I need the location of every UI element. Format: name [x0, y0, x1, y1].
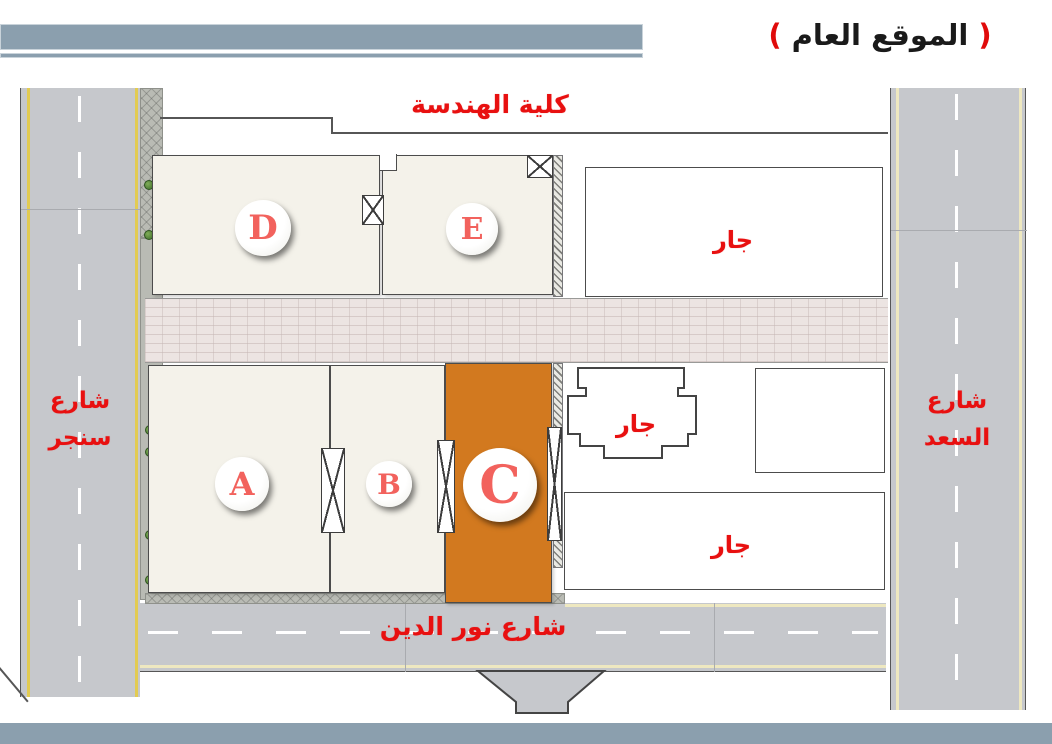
- right-road-edge-line: [896, 88, 899, 710]
- label-engineering-college: كلية الهندسة: [390, 90, 590, 119]
- core-xbox-c-right: [547, 427, 562, 541]
- label-neighbor-middle: جار: [596, 410, 676, 438]
- building-a-letter: A: [230, 465, 255, 503]
- driveway-ramp: [474, 669, 608, 715]
- building-b-letter: B: [377, 468, 401, 501]
- label-neighbor-bottom: جار: [691, 531, 771, 559]
- label-street-right: شارع السعد: [922, 383, 992, 457]
- central-walkway: [145, 298, 888, 363]
- building-e-badge: E: [446, 203, 498, 255]
- building-c-letter: C: [479, 455, 520, 516]
- building-e-notch: [380, 154, 397, 171]
- street-right-line1: شارع: [922, 383, 992, 420]
- hatch-strip: [553, 155, 563, 297]
- core-xbox-e-corner: [527, 155, 553, 178]
- parcel-plain: [755, 368, 885, 473]
- right-road-joint: [891, 230, 1027, 231]
- label-street-left: شارع سنجر: [45, 383, 115, 457]
- right-road-edge-line: [1019, 88, 1022, 710]
- core-xbox-ab: [321, 448, 345, 533]
- boundary-line: [160, 117, 333, 119]
- left-road-edge-line: [27, 88, 30, 697]
- page-title: ( الموقع العام ): [735, 12, 1025, 58]
- bottom-road-edge-line: [140, 665, 886, 668]
- label-street-bottom: شارع نور الدين: [348, 612, 598, 641]
- title-text: الموقع العام: [792, 18, 969, 52]
- street-left-line2: سنجر: [45, 420, 115, 457]
- bottom-road-edge-line: [565, 604, 886, 607]
- street-left-line1: شارع: [45, 383, 115, 420]
- building-e-letter: E: [461, 212, 484, 247]
- building-d-badge: D: [235, 200, 291, 256]
- site-plan-slide: ( الموقع العام ): [0, 0, 1052, 744]
- building-a-badge: A: [215, 457, 269, 511]
- header-bar-thin: [0, 53, 643, 58]
- title-open-paren: (: [768, 18, 781, 52]
- core-xbox-de: [362, 195, 384, 225]
- footer-bar: [0, 723, 1052, 744]
- left-road-joint: [21, 209, 141, 210]
- street-right-line2: السعد: [922, 420, 992, 457]
- boundary-line: [331, 132, 888, 134]
- building-b-badge: B: [366, 461, 412, 507]
- building-c-badge: C: [463, 448, 537, 522]
- left-road-edge-line: [135, 88, 138, 697]
- core-xbox-bc: [437, 440, 455, 533]
- building-d-letter: D: [248, 208, 277, 248]
- label-neighbor-top: جار: [693, 226, 773, 254]
- header-bar-thick: [0, 24, 643, 50]
- bottom-road-joint: [714, 603, 715, 672]
- title-close-paren: ): [978, 18, 991, 52]
